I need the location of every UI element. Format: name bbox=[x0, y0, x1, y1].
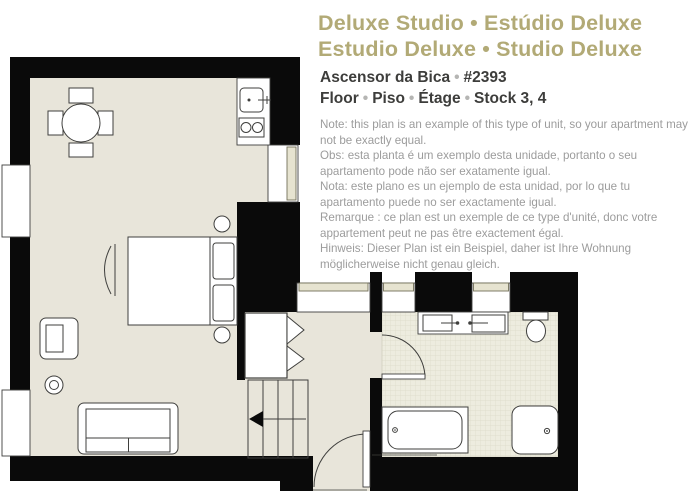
wall bbox=[370, 378, 382, 457]
window-sill bbox=[299, 283, 368, 291]
bullet-separator: • bbox=[405, 90, 418, 107]
dining-table-icon bbox=[62, 104, 100, 142]
note-en: Note: this plan is an example of this ty… bbox=[320, 117, 692, 148]
floor-value: Stock 3, 4 bbox=[474, 90, 546, 107]
nightstand-icon bbox=[214, 327, 230, 343]
floor-label-en: Floor bbox=[320, 90, 359, 107]
header-block: Deluxe Studio • Estúdio Deluxe Estudio D… bbox=[318, 10, 700, 62]
door-leaf-icon bbox=[382, 374, 425, 379]
bullet-separator: • bbox=[461, 90, 474, 107]
window-sill bbox=[474, 283, 509, 291]
wall bbox=[237, 202, 300, 312]
nightstand-icon bbox=[214, 216, 230, 232]
pillow-icon bbox=[213, 243, 234, 279]
kitchen bbox=[237, 78, 271, 145]
page-title-line-1: Deluxe Studio • Estúdio Deluxe bbox=[318, 10, 700, 36]
toilet-bowl-icon bbox=[527, 320, 546, 342]
floor-label-fr: Étage bbox=[418, 90, 460, 107]
disclaimer-notes: Note: this plan is an example of this ty… bbox=[320, 117, 692, 272]
door-leaf-icon bbox=[363, 431, 370, 487]
dining-chair-icon bbox=[69, 143, 93, 157]
window-sill bbox=[287, 147, 296, 200]
unit-heading: Ascensor da Bica•#2393 bbox=[320, 67, 700, 88]
wall bbox=[370, 457, 578, 491]
unit-name: Ascensor da Bica bbox=[320, 69, 450, 86]
note-pt: Obs: esta planta é um exemplo desta unid… bbox=[320, 148, 692, 179]
wall bbox=[10, 456, 295, 481]
unit-headings: Ascensor da Bica•#2393 Floor•Piso•Étage•… bbox=[320, 67, 700, 109]
wall bbox=[270, 57, 300, 145]
side-table-icon bbox=[45, 376, 63, 394]
page-title-line-2: Estudio Deluxe • Studio Deluxe bbox=[318, 36, 700, 62]
note-fr: Remarque : ce plan est un exemple de ce … bbox=[320, 210, 692, 241]
doorway-floor bbox=[368, 332, 384, 378]
window-icon bbox=[2, 390, 30, 456]
shower-icon bbox=[512, 406, 558, 454]
floor-heading: Floor•Piso•Étage•Stock 3, 4 bbox=[320, 88, 700, 109]
note-es: Nota: este plano es un ejemplo de esta u… bbox=[320, 179, 692, 210]
toilet-tank-icon bbox=[523, 312, 548, 320]
shower-drain-icon bbox=[546, 430, 548, 432]
faucet-icon bbox=[468, 321, 472, 325]
floor-label-pt: Piso bbox=[372, 90, 405, 107]
window-icon bbox=[2, 165, 30, 237]
note-de: Hinweis: Dieser Plan ist ein Beispiel, d… bbox=[320, 241, 692, 272]
dining-chair-icon bbox=[48, 111, 63, 135]
sink-drain-icon bbox=[248, 99, 251, 102]
dining-chair-icon bbox=[69, 88, 93, 103]
wall bbox=[10, 57, 300, 78]
faucet-icon bbox=[456, 321, 460, 325]
wall bbox=[237, 312, 245, 380]
unit-number: #2393 bbox=[464, 69, 507, 86]
wall bbox=[10, 237, 30, 390]
wall bbox=[415, 272, 472, 312]
entry-floor bbox=[313, 456, 370, 491]
wall bbox=[280, 456, 313, 491]
closet-icon bbox=[245, 313, 287, 378]
bullet-separator: • bbox=[450, 69, 463, 86]
wall bbox=[370, 272, 382, 332]
bathtub-drain-icon bbox=[394, 429, 396, 431]
wall bbox=[10, 57, 30, 165]
pillow-icon bbox=[213, 285, 234, 321]
bullet-separator: • bbox=[359, 90, 372, 107]
window-sill bbox=[384, 283, 414, 291]
floorplan-page: Deluxe Studio • Estúdio Deluxe Estudio D… bbox=[0, 0, 700, 500]
